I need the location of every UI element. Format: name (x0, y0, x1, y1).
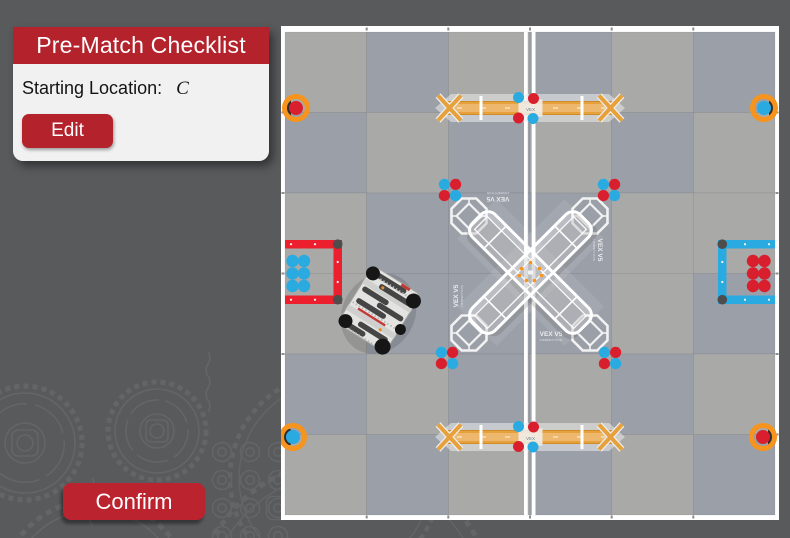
squiggle-decoration (206, 352, 210, 412)
beam-label: VEX (526, 107, 535, 112)
beam-label: VEX (526, 436, 535, 441)
bottom-beam: VEX (435, 421, 625, 453)
gear-icon (108, 382, 206, 480)
field-view: VEX V5 COMPETITION VEX V5 COMPETITION VE… (281, 26, 779, 520)
confirm-button[interactable]: Confirm (63, 483, 205, 520)
rings-decoration (213, 443, 290, 538)
edit-button[interactable]: Edit (22, 114, 113, 148)
svg-text:VEX V5: VEX V5 (453, 284, 460, 307)
field-canvas: VEX V5 COMPETITION VEX V5 COMPETITION VE… (281, 26, 779, 520)
pre-match-panel: Pre-Match Checklist Starting Location:C … (13, 27, 269, 161)
app-background: VEX V5 COMPETITION VEX V5 COMPETITION VE… (0, 0, 790, 538)
panel-title: Pre-Match Checklist (36, 32, 246, 59)
svg-text:COMPETITION: COMPETITION (487, 191, 509, 195)
starting-location-label: Starting Location: (22, 78, 162, 98)
top-beam: VEX (435, 92, 625, 124)
starting-location-value: C (176, 78, 189, 99)
panel-header: Pre-Match Checklist (13, 27, 269, 64)
panel-body: Starting Location:C Edit (13, 64, 269, 161)
